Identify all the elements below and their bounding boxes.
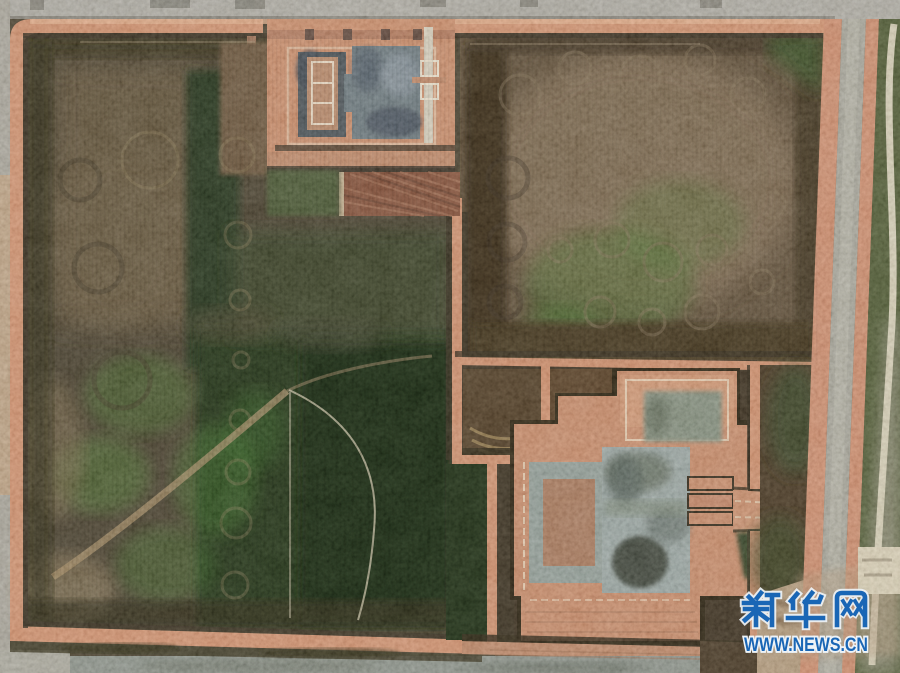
svg-text:WWW.NEWS.CN: WWW.NEWS.CN — [744, 633, 868, 655]
